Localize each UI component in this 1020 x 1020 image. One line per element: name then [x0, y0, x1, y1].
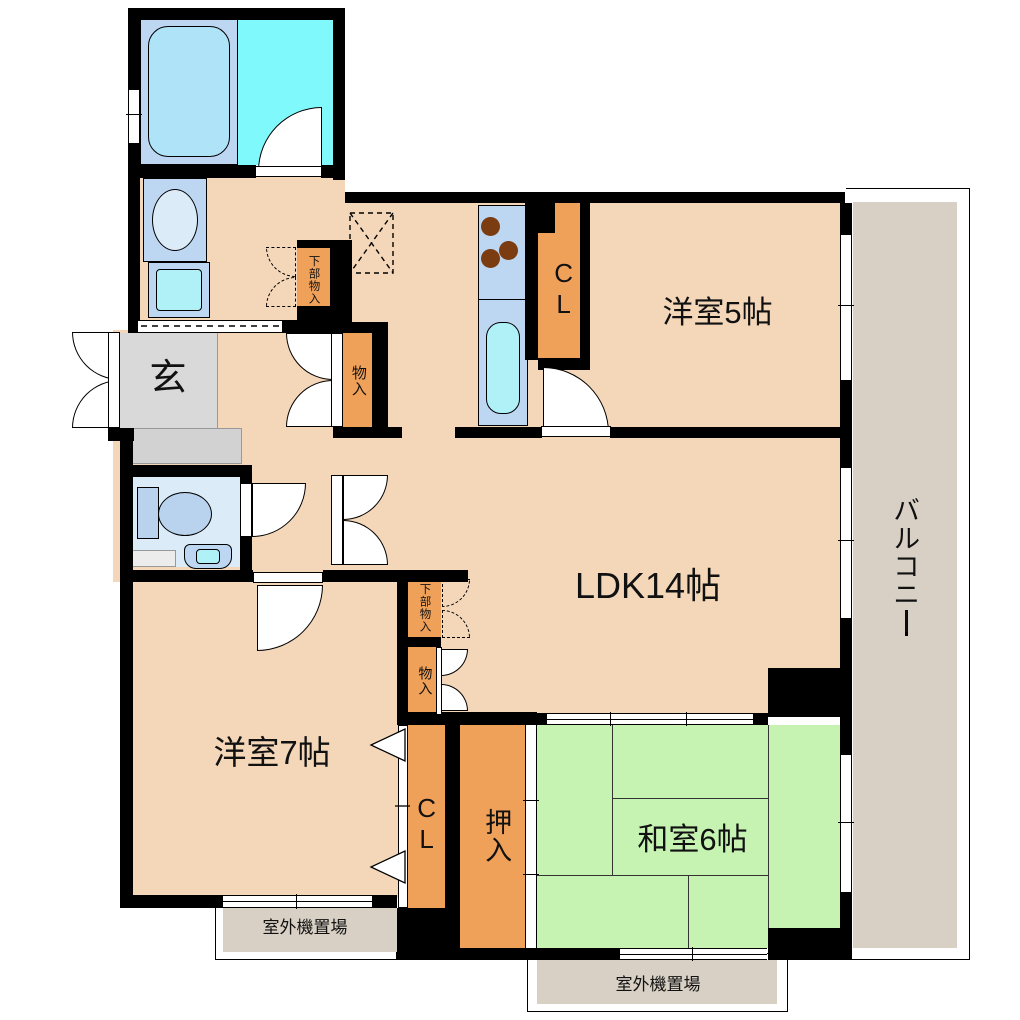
window-tick — [523, 800, 539, 801]
tatami-seam — [612, 798, 768, 799]
wall — [397, 908, 460, 960]
wall — [345, 192, 845, 203]
window-tick — [838, 305, 854, 306]
window-tick — [838, 540, 854, 541]
tatami-seam — [537, 875, 768, 876]
wall — [537, 948, 620, 960]
wall — [840, 717, 852, 755]
window — [840, 468, 852, 618]
window-tick — [620, 954, 767, 955]
closet-label-under-storage-ldk: 下部物入 — [412, 578, 437, 638]
tatami-seam — [688, 875, 689, 948]
window — [840, 235, 852, 380]
room-label-balcony: バルコニー — [884, 468, 924, 663]
wall — [372, 333, 388, 427]
closet-label-storage-hall: 物入 — [344, 350, 372, 412]
door-leaf — [541, 426, 611, 437]
stove-burner-icon — [481, 217, 500, 236]
wall — [580, 203, 590, 370]
wall — [120, 582, 133, 908]
wall — [455, 427, 542, 438]
outdoor-unit-label-left: 室外機置場 — [225, 917, 385, 939]
wall — [840, 380, 852, 468]
wall — [525, 203, 538, 360]
closet-cl-upper — [555, 203, 580, 235]
room-label-ldk: LDK14帖 — [528, 566, 768, 606]
window-tick — [126, 114, 142, 115]
wall — [120, 895, 223, 908]
door-leaf — [331, 475, 343, 565]
kitchen-sink-icon — [486, 322, 520, 414]
closet-label-cl-upper: CL — [545, 243, 581, 335]
window — [840, 755, 852, 892]
window-tick — [223, 901, 372, 902]
wall — [397, 578, 408, 715]
room-label-japanese6: 和室6帖 — [575, 822, 810, 858]
wall — [132, 465, 240, 477]
room-label-entrance: 玄 — [136, 356, 200, 400]
door-leaf — [255, 166, 322, 177]
wall — [120, 570, 253, 582]
wall — [397, 712, 537, 725]
wall — [840, 618, 852, 670]
wall — [408, 637, 441, 647]
washing-machine-drum-icon — [156, 269, 202, 311]
wall — [768, 928, 852, 960]
wall — [240, 465, 252, 485]
window-tick — [547, 719, 753, 720]
wall — [330, 322, 388, 333]
kitchen-counter-divider — [478, 299, 528, 300]
wall — [840, 203, 852, 235]
stove-burner-icon — [499, 241, 518, 260]
wall — [333, 8, 345, 180]
wall — [128, 8, 140, 92]
door-leaf — [108, 332, 120, 428]
wall — [128, 165, 256, 178]
washbasin-icon — [152, 189, 198, 251]
closet-label-cl-lower: CL — [407, 778, 445, 870]
wall — [768, 668, 852, 717]
window-tick — [523, 874, 539, 875]
outdoor-unit-label-right: 室外機置場 — [578, 974, 738, 996]
wall — [538, 203, 555, 233]
closet-label-storage-ldk: 物入 — [410, 660, 440, 702]
floor-plan: LDK14帖 洋室5帖 洋室7帖 和室6帖 玄 バルコニー CL CL 押入 物… — [0, 0, 1020, 1020]
toilet-shelf — [132, 550, 176, 567]
room-label-western5: 洋室5帖 — [600, 295, 835, 331]
fusuma-door — [525, 725, 537, 948]
corner-sink-basin-icon — [196, 549, 220, 564]
room-label-western7: 洋室7帖 — [152, 733, 392, 773]
wall — [610, 427, 845, 438]
wall — [753, 713, 768, 725]
wall — [840, 892, 852, 930]
toilet-bowl-icon — [158, 492, 212, 536]
wall — [321, 165, 345, 178]
bathtub-icon — [148, 26, 230, 157]
closet-label-under-storage-washroom: 下部物入 — [301, 250, 326, 310]
wall — [333, 427, 402, 438]
door-leaf — [240, 483, 252, 537]
wall — [460, 948, 537, 960]
wall — [537, 713, 547, 725]
door-leaf — [331, 333, 343, 427]
wall — [128, 8, 345, 20]
window — [128, 90, 140, 143]
toilet-tank-icon — [137, 487, 159, 539]
closet-label-oshiire: 押入 — [477, 798, 515, 874]
wall — [297, 240, 332, 248]
wall — [120, 428, 133, 582]
wall — [372, 895, 397, 908]
entrance-step — [132, 428, 242, 464]
door-leaf — [253, 572, 323, 583]
window-tick — [838, 822, 854, 823]
stove-burner-icon — [481, 249, 500, 268]
window — [138, 320, 282, 333]
